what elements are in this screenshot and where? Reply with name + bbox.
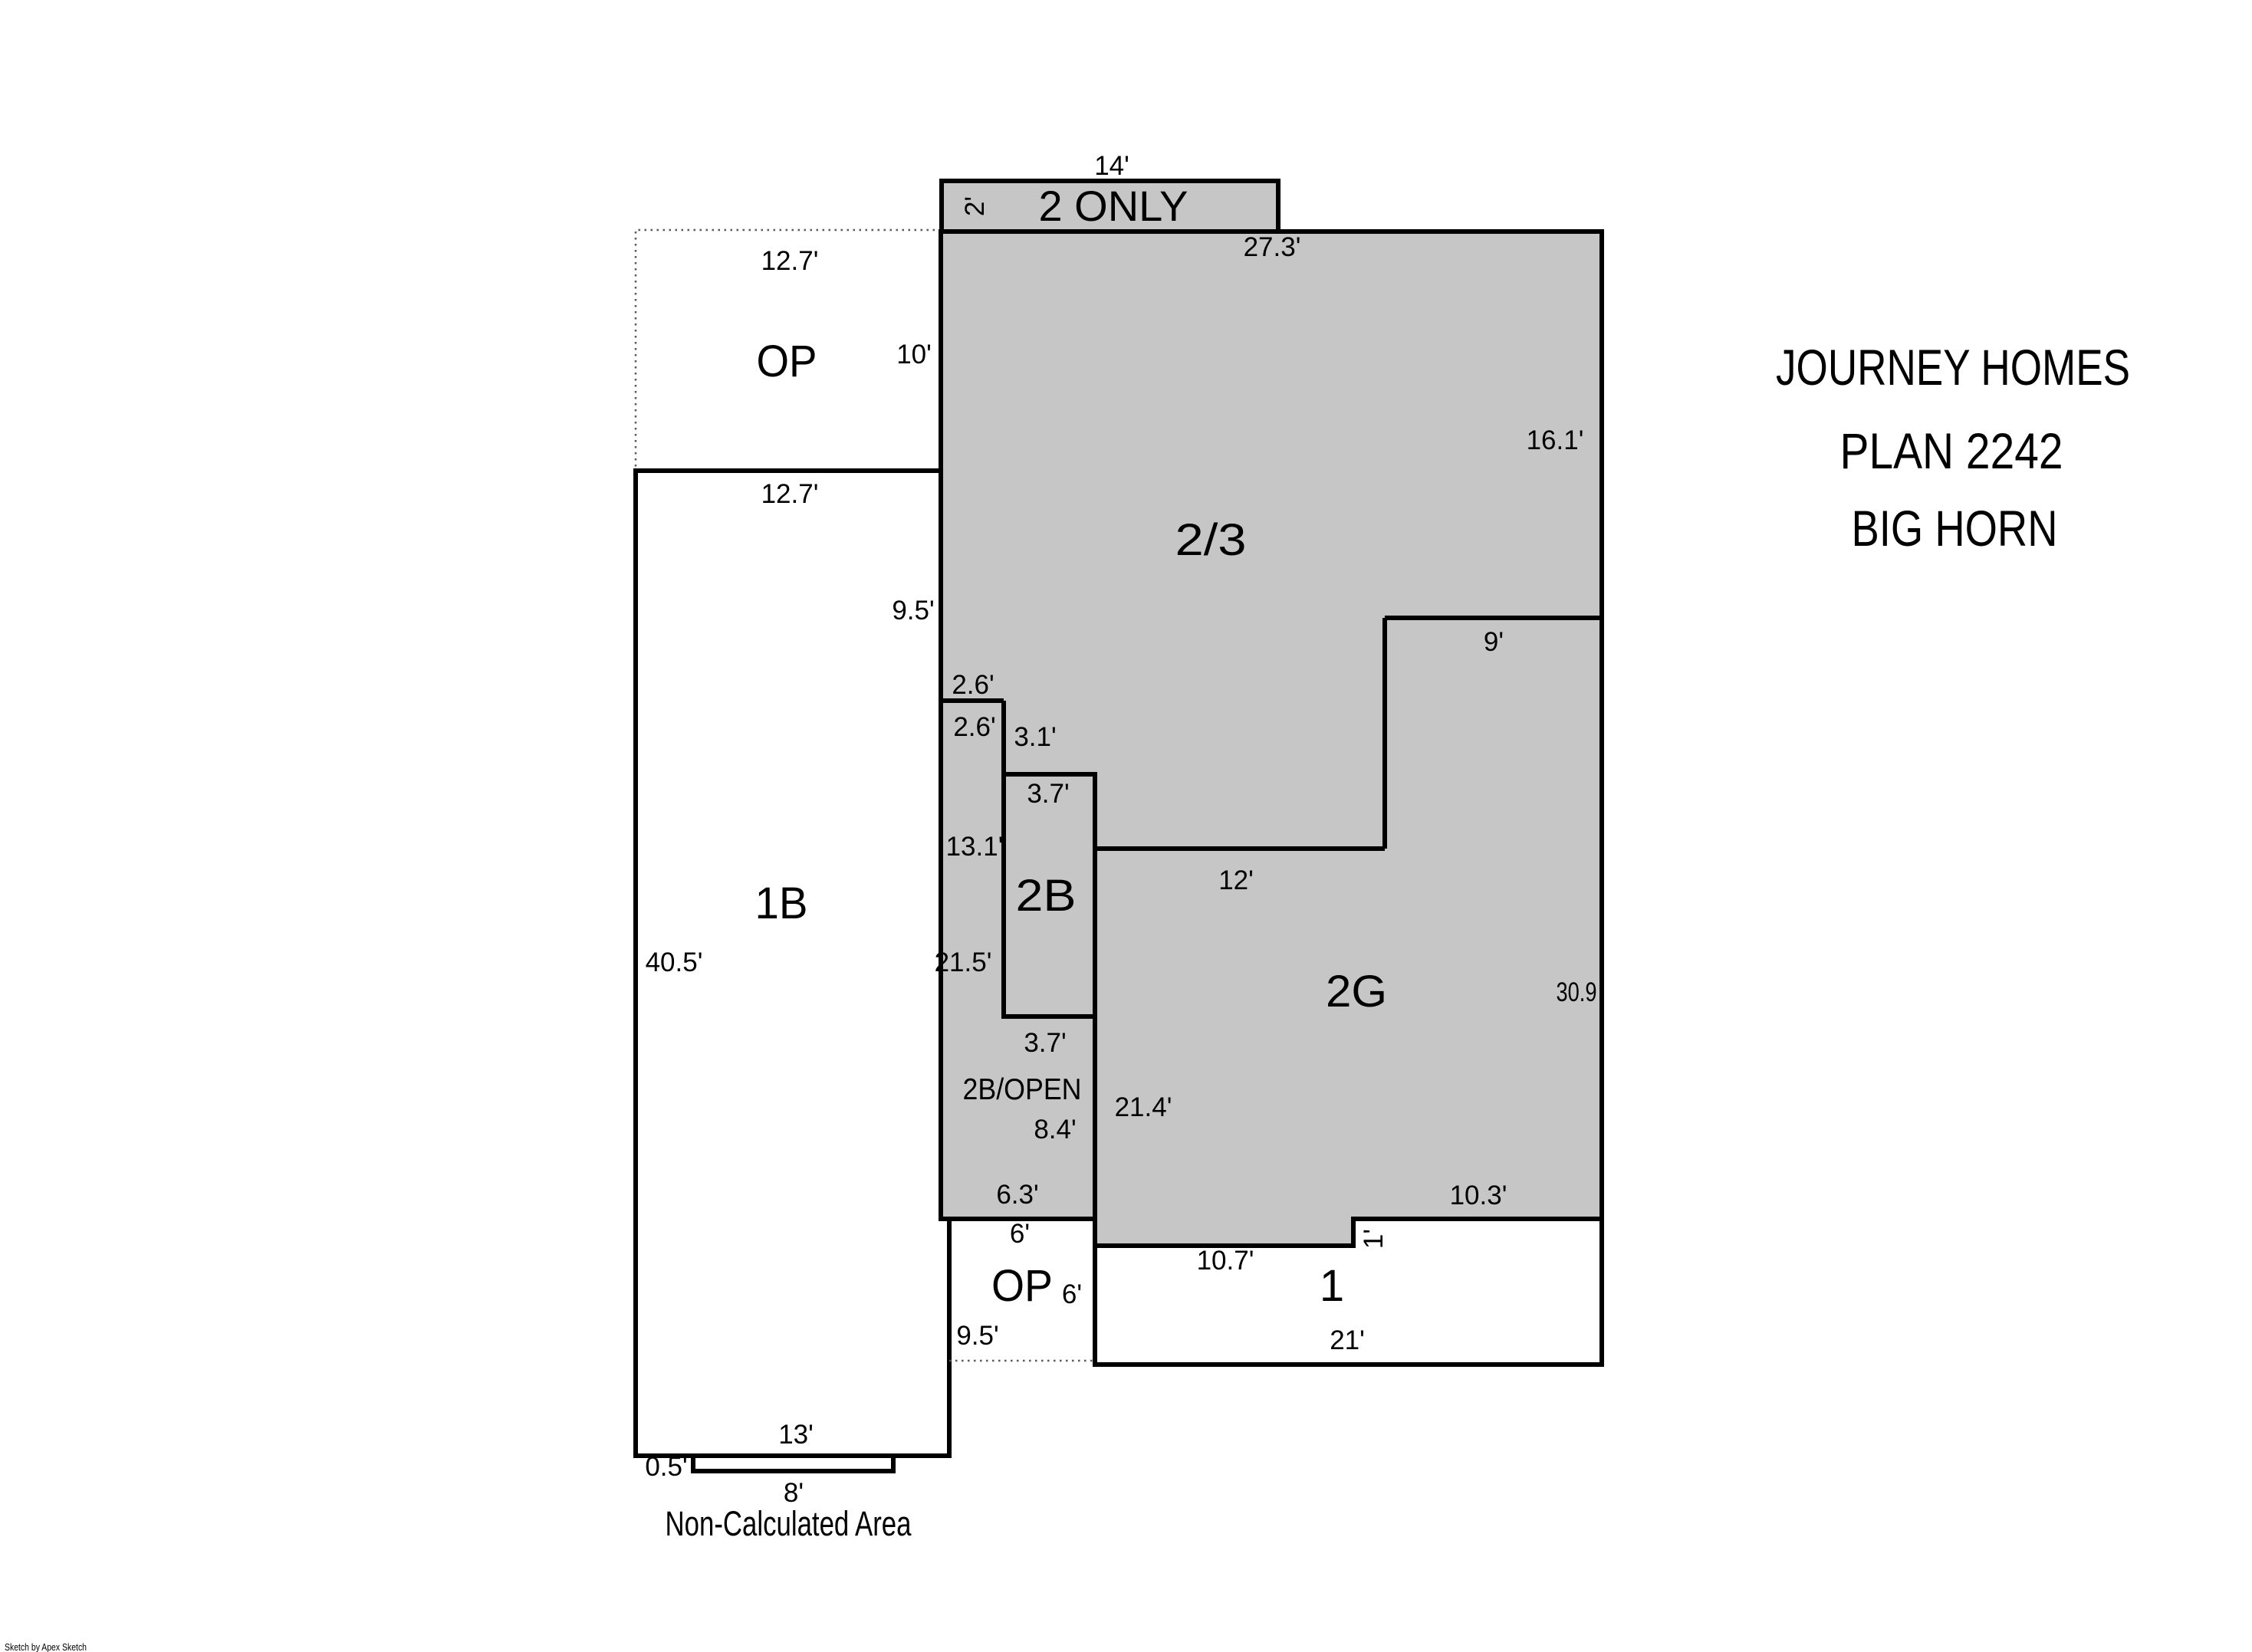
svg-text:0.5': 0.5': [645, 1452, 687, 1482]
svg-text:21.5': 21.5': [935, 948, 992, 977]
svg-text:2B/OPEN: 2B/OPEN: [963, 1073, 1082, 1106]
svg-text:2 ONLY: 2 ONLY: [1038, 182, 1188, 230]
svg-text:8.4': 8.4': [1034, 1115, 1076, 1145]
svg-text:2.6': 2.6': [953, 712, 995, 742]
svg-text:1B: 1B: [755, 879, 808, 928]
svg-text:9.5': 9.5': [892, 596, 934, 626]
svg-text:6': 6': [1062, 1279, 1082, 1309]
svg-text:1: 1: [1320, 1261, 1344, 1311]
svg-text:10.3': 10.3': [1450, 1181, 1507, 1210]
svg-text:10': 10': [896, 340, 932, 369]
svg-text:2G: 2G: [1326, 967, 1387, 1016]
svg-text:1': 1': [1359, 1229, 1389, 1249]
svg-text:21.4': 21.4': [1115, 1092, 1172, 1122]
svg-text:Sketch by Apex Sketch: Sketch by Apex Sketch: [5, 1641, 87, 1652]
svg-text:13.1': 13.1': [946, 832, 1004, 862]
svg-text:13': 13': [778, 1420, 814, 1450]
svg-text:2/3: 2/3: [1175, 515, 1247, 565]
svg-text:2.6': 2.6': [952, 670, 994, 700]
svg-text:6.3': 6.3': [996, 1180, 1038, 1210]
svg-text:3.7': 3.7': [1027, 779, 1069, 809]
svg-text:40.5': 40.5': [646, 948, 703, 977]
svg-text:2B: 2B: [1016, 871, 1077, 921]
svg-text:30.9: 30.9: [1557, 977, 1597, 1007]
svg-text:14': 14': [1094, 151, 1129, 181]
svg-text:2': 2': [960, 196, 990, 216]
svg-text:16.1': 16.1': [1527, 425, 1584, 455]
svg-text:6': 6': [1010, 1219, 1030, 1249]
svg-text:3.7': 3.7': [1024, 1028, 1066, 1058]
svg-text:BIG HORN: BIG HORN: [1852, 500, 2058, 557]
svg-text:9.5': 9.5': [956, 1321, 998, 1351]
svg-text:JOURNEY HOMES: JOURNEY HOMES: [1776, 339, 2130, 396]
svg-text:9': 9': [1484, 627, 1504, 657]
svg-text:OP: OP: [757, 337, 817, 386]
svg-text:21': 21': [1330, 1325, 1365, 1355]
svg-text:12.7': 12.7': [761, 479, 819, 509]
svg-text:3.1': 3.1': [1014, 722, 1056, 752]
svg-text:10.7': 10.7': [1197, 1246, 1254, 1276]
svg-text:12': 12': [1218, 865, 1254, 895]
svg-text:12.7': 12.7': [761, 246, 819, 276]
svg-text:OP: OP: [991, 1261, 1053, 1311]
svg-text:27.3': 27.3': [1244, 232, 1301, 262]
svg-text:PLAN 2242: PLAN 2242: [1840, 422, 2063, 479]
svg-text:Non-Calculated Area: Non-Calculated Area: [666, 1504, 912, 1543]
